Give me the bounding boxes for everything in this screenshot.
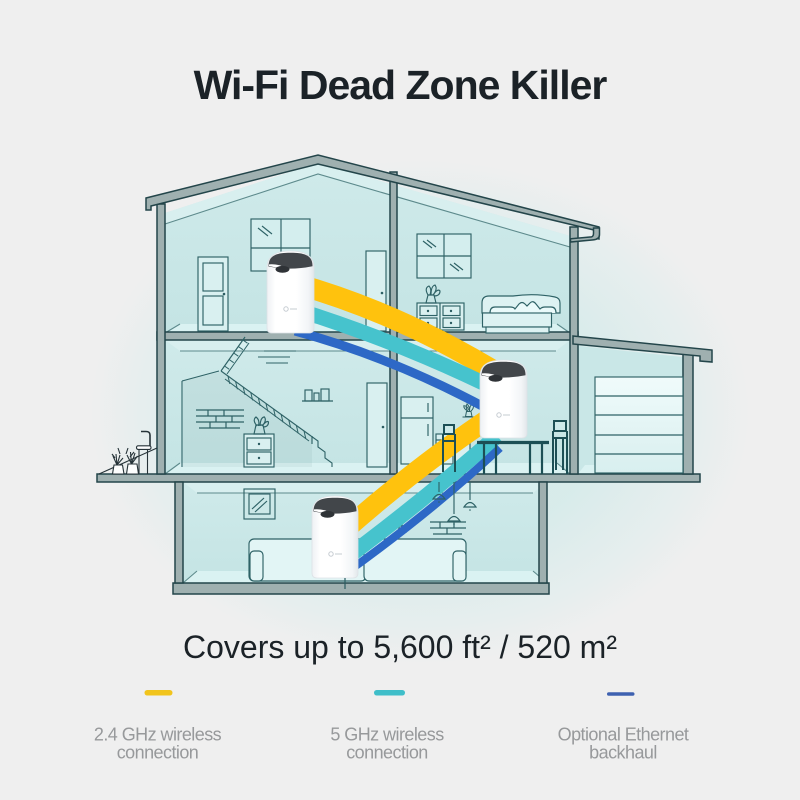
svg-text:Optional Ethernet: Optional Ethernet <box>558 725 689 745</box>
svg-text:connection: connection <box>346 743 428 763</box>
svg-text:connection: connection <box>117 743 199 763</box>
svg-text:backhaul: backhaul <box>589 743 657 763</box>
svg-text:Wi-Fi Dead Zone Killer: Wi-Fi Dead Zone Killer <box>194 62 608 108</box>
svg-text:Covers up to 5,600 ft² / 520 m: Covers up to 5,600 ft² / 520 m² <box>183 629 617 665</box>
svg-text:5 GHz wireless: 5 GHz wireless <box>330 725 444 745</box>
svg-text:2.4 GHz wireless: 2.4 GHz wireless <box>94 725 222 745</box>
